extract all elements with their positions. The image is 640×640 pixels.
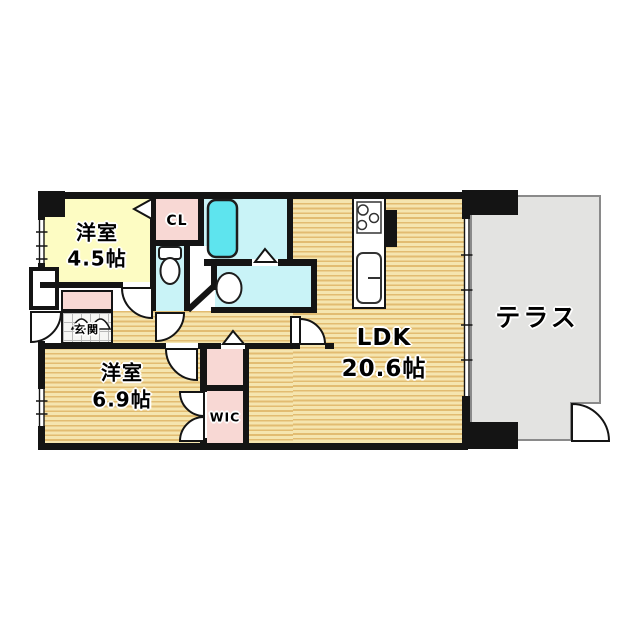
wall-left-seg4 [38,349,45,389]
label-room45-size: 4.5帖 [67,243,126,272]
wall-hall-south-c [245,343,300,349]
wall-closet-west-b [200,438,207,444]
room-ldk-floor [293,198,464,443]
label-room69-size: 6.9帖 [92,384,151,413]
label-room69-name: 洋室 [101,357,143,386]
wall-hall-south-a [38,343,166,349]
wall-washroom-bottom [211,307,317,313]
wall-washroom-east [311,262,317,313]
label-entrance: 玄関 [74,321,100,337]
bathroom-floor [204,196,287,259]
washroom-vestibule-floor [190,246,211,307]
toilet-room-floor [156,246,184,311]
label-terrace: テラス [495,298,579,334]
wall-bath-east [287,196,293,262]
pillar-top-right [462,190,518,215]
entrance-porch-box [29,267,59,310]
wall-closet-east [243,349,249,443]
wall-hall-south-d [325,343,334,349]
wall-top [38,192,466,199]
wall-terrace-stub-top [462,213,470,219]
wall-yellow-right [150,196,156,311]
door-arc-entrance [31,312,61,342]
washroom-floor [215,266,311,307]
label-ldk-name: LDK [357,325,412,351]
wall-closet-divider [207,385,243,391]
hallway-floor [113,311,293,343]
wall-toilet-right [184,246,190,311]
wall-cl-bottom [150,240,204,246]
wall-left-seg5 [38,426,45,445]
wall-closet-west-a [200,349,207,392]
wall-cl-right [198,196,204,244]
wall-left-seg1 [38,215,45,220]
floorplan-canvas: 洋室 4.5帖 CL 玄関 洋室 6.9帖 WIC LDK 20.6帖 テラス [0,0,640,640]
door-recess [123,288,150,311]
wall-bath-bottom-a [204,259,252,266]
pillar-top-left [38,191,65,217]
label-ldk-size: 20.6帖 [342,349,427,383]
label-cl: CL [166,213,187,229]
shoe-cabinet [61,290,113,311]
wall-left-seg2 [38,263,45,269]
pillar-bottom-right [462,422,518,449]
label-wic: WIC [210,410,241,425]
wall-bottom [38,443,468,450]
wall-kitchen-partition [383,210,397,247]
room-ldk-floor-lower [249,343,293,443]
terrace-door-notch [570,402,601,441]
wall-terrace-stub-bottom [462,396,470,423]
wall-yellow-bottom [40,282,123,288]
wall-vestibule-right [211,262,217,290]
closet-upper-floor [207,349,243,385]
label-room45-name: 洋室 [76,217,118,246]
